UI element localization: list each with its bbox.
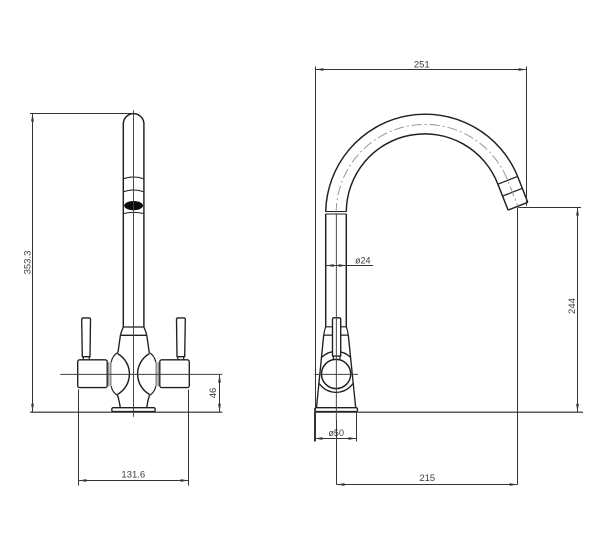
svg-text:ø24: ø24 — [355, 256, 371, 266]
svg-text:353.3: 353.3 — [23, 251, 34, 275]
svg-text:251: 251 — [414, 59, 430, 70]
svg-text:215: 215 — [419, 473, 435, 484]
svg-text:244: 244 — [567, 298, 578, 314]
svg-text:131.6: 131.6 — [121, 470, 145, 481]
svg-text:46: 46 — [208, 388, 219, 399]
svg-text:ø50: ø50 — [328, 428, 344, 438]
